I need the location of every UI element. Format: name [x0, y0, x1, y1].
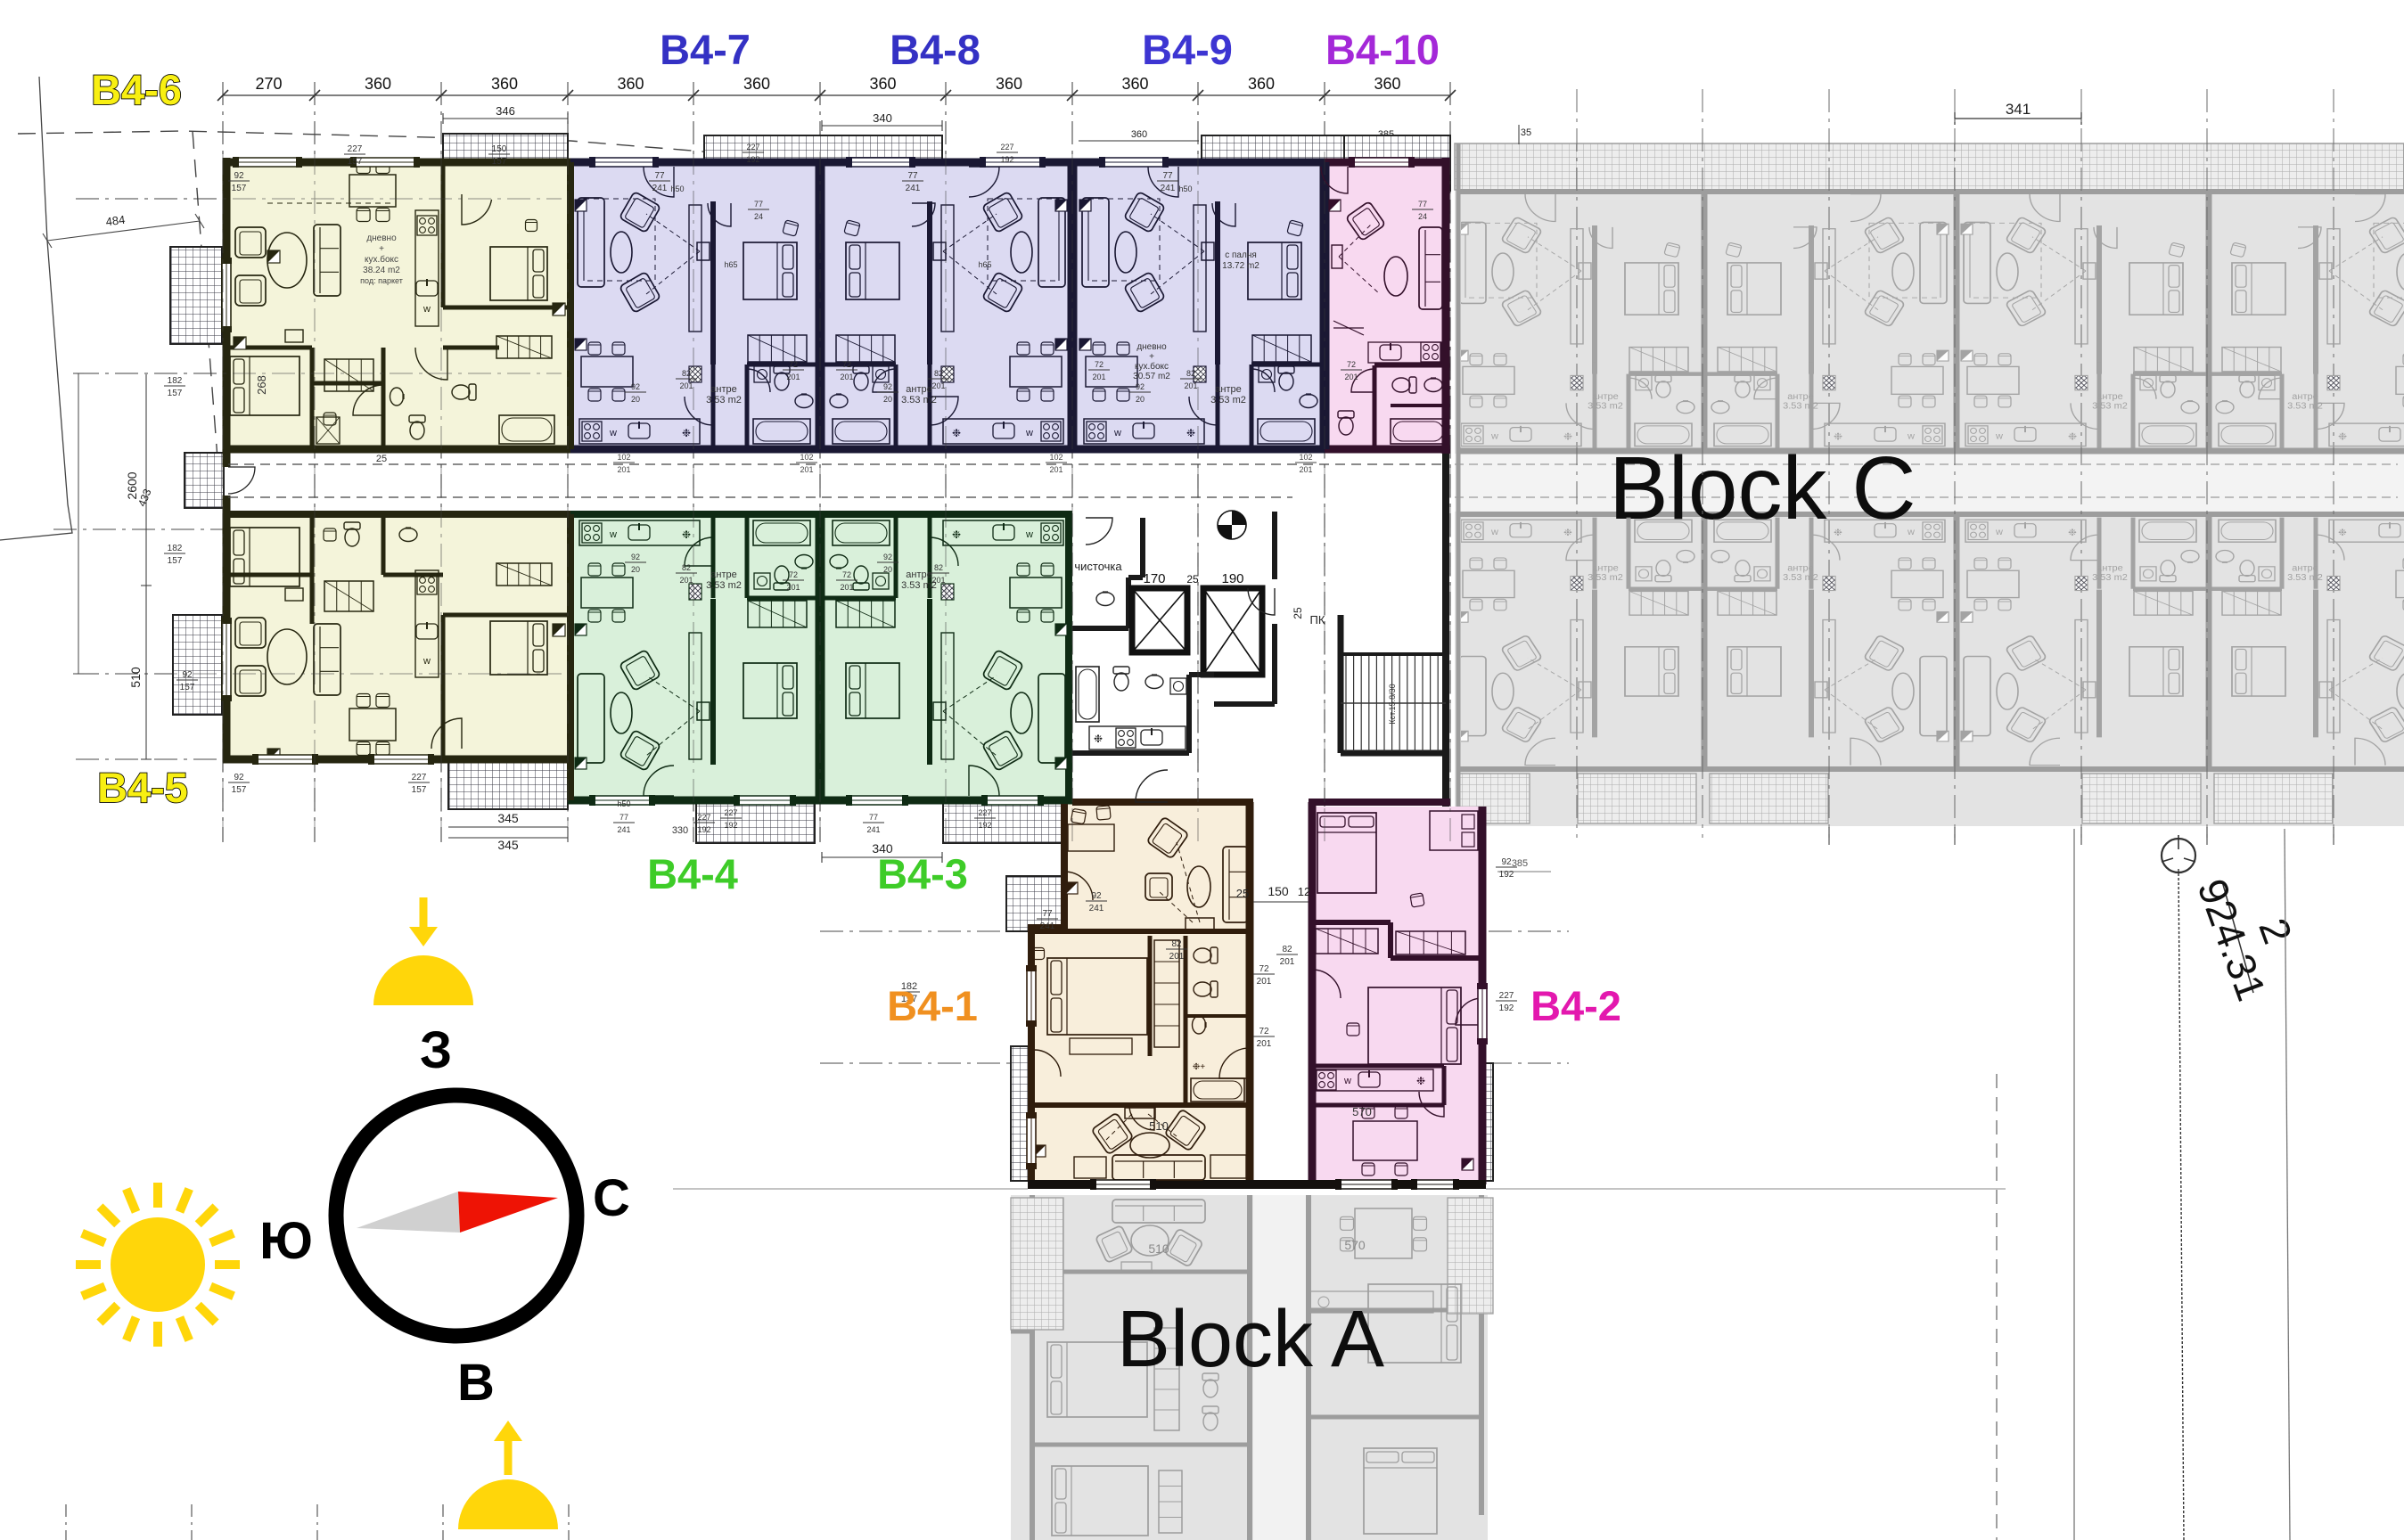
svg-text:антре: антре	[710, 384, 736, 395]
svg-text:92: 92	[234, 171, 244, 181]
svg-text:201: 201	[840, 373, 853, 381]
svg-text:201: 201	[800, 465, 813, 474]
svg-text:30.57 m2: 30.57 m2	[1133, 372, 1170, 381]
svg-text:антре: антре	[906, 384, 931, 395]
svg-text:B4-10: B4-10	[1325, 26, 1440, 73]
svg-text:антре: антре	[1787, 564, 1814, 573]
svg-text:157: 157	[168, 556, 183, 566]
svg-text:227: 227	[978, 808, 991, 817]
svg-text:ПК: ПК	[1310, 613, 1325, 627]
svg-text:157: 157	[412, 785, 427, 795]
svg-text:3.53 m2: 3.53 m2	[1783, 573, 1818, 582]
svg-text:92: 92	[234, 773, 244, 782]
svg-text:3.53 m2: 3.53 m2	[706, 395, 742, 405]
svg-text:157: 157	[492, 157, 507, 167]
svg-text:B4-7: B4-7	[660, 26, 751, 73]
svg-text:h65: h65	[724, 260, 737, 269]
svg-text:92: 92	[182, 670, 193, 680]
svg-text:150: 150	[492, 144, 507, 154]
svg-text:3.53 m2: 3.53 m2	[2287, 573, 2323, 582]
svg-text:345: 345	[497, 811, 519, 825]
svg-text:антре: антре	[906, 569, 931, 580]
svg-text:77: 77	[1418, 200, 1427, 209]
svg-text:З: З	[420, 1021, 452, 1079]
svg-text:w: w	[1113, 428, 1121, 438]
svg-text:360: 360	[365, 75, 391, 93]
svg-text:227: 227	[1499, 991, 1514, 1001]
svg-text:антре: антре	[2096, 391, 2123, 401]
svg-text:❉: ❉	[1834, 528, 1842, 538]
svg-text:92: 92	[631, 553, 640, 561]
svg-text:❉: ❉	[682, 528, 691, 541]
svg-text:227: 227	[348, 144, 363, 154]
svg-text:w: w	[1907, 528, 1916, 537]
svg-text:82: 82	[1171, 939, 1182, 949]
svg-text:h50: h50	[1178, 184, 1192, 193]
svg-text:346: 346	[496, 104, 515, 118]
svg-text:330: 330	[672, 825, 688, 836]
svg-text:Кст.15.8/30: Кст.15.8/30	[1388, 684, 1397, 724]
svg-text:w: w	[1995, 528, 2004, 537]
svg-text:25: 25	[1292, 607, 1304, 619]
svg-text:241: 241	[617, 825, 630, 834]
svg-text:3.53 m2: 3.53 m2	[2092, 573, 2128, 582]
svg-text:B4-8: B4-8	[890, 26, 980, 73]
svg-text:❉: ❉	[2338, 432, 2347, 442]
svg-text:201: 201	[1092, 373, 1105, 381]
svg-text:192: 192	[1499, 870, 1514, 880]
svg-text:12: 12	[1298, 885, 1310, 898]
svg-text:201: 201	[1280, 957, 1295, 967]
svg-text:w: w	[1907, 431, 1915, 441]
svg-text:82: 82	[934, 369, 943, 378]
svg-text:w: w	[423, 656, 431, 667]
svg-text:3.53 m2: 3.53 m2	[1783, 401, 1818, 411]
svg-text:157: 157	[232, 785, 247, 795]
svg-text:92: 92	[1501, 857, 1512, 867]
svg-text:201: 201	[1344, 373, 1358, 381]
svg-text:360: 360	[617, 75, 644, 93]
svg-text:241: 241	[906, 184, 921, 193]
svg-text:77: 77	[754, 200, 763, 209]
svg-text:антре: антре	[1215, 384, 1241, 395]
svg-text:192: 192	[1499, 1003, 1514, 1013]
svg-text:182: 182	[168, 376, 183, 386]
svg-text:антре: антре	[2292, 391, 2318, 401]
svg-text:192: 192	[746, 155, 759, 164]
svg-text:92: 92	[883, 553, 892, 561]
svg-text:201: 201	[1184, 381, 1197, 390]
svg-text:77: 77	[869, 813, 878, 822]
svg-text:241: 241	[652, 184, 668, 193]
svg-text:82: 82	[682, 369, 691, 378]
svg-text:В: В	[457, 1354, 495, 1412]
svg-text:Ю: Ю	[259, 1212, 313, 1270]
svg-text:190: 190	[1221, 571, 1243, 586]
svg-text:3.53 m2: 3.53 m2	[1588, 401, 1623, 411]
svg-text:201: 201	[931, 381, 945, 390]
svg-text:w: w	[1995, 431, 2003, 441]
svg-text:241: 241	[1040, 922, 1055, 931]
svg-text:201: 201	[679, 576, 693, 585]
svg-text:❉: ❉	[682, 427, 691, 439]
svg-text:201: 201	[1257, 977, 1272, 987]
svg-text:360: 360	[1131, 129, 1147, 140]
svg-text:+: +	[379, 244, 384, 254]
svg-text:82: 82	[1186, 369, 1195, 378]
svg-text:360: 360	[1121, 75, 1148, 93]
svg-text:72: 72	[789, 570, 798, 579]
svg-text:72: 72	[1259, 1027, 1269, 1036]
svg-text:102: 102	[617, 453, 630, 462]
svg-text:25: 25	[1236, 887, 1249, 900]
svg-text:192: 192	[1000, 155, 1013, 164]
svg-text:102: 102	[1049, 453, 1063, 462]
svg-text:чисточка: чисточка	[1074, 560, 1122, 573]
svg-text:341: 341	[2006, 101, 2031, 118]
svg-text:227: 227	[724, 808, 737, 817]
svg-text:❉: ❉	[1563, 432, 1572, 442]
svg-text:с палня: с палня	[1225, 250, 1257, 260]
svg-text:20: 20	[883, 565, 892, 574]
svg-text:h50: h50	[617, 799, 630, 808]
svg-text:201: 201	[1049, 465, 1063, 474]
svg-text:102: 102	[1299, 453, 1312, 462]
svg-text:182: 182	[168, 544, 183, 553]
svg-text:201: 201	[786, 373, 800, 381]
svg-text:13.72 m2: 13.72 m2	[1222, 261, 1259, 271]
svg-text:72: 72	[1347, 360, 1356, 369]
svg-text:241: 241	[1161, 184, 1176, 193]
svg-text:Block C: Block C	[1609, 438, 1916, 538]
svg-text:92: 92	[631, 382, 640, 391]
svg-text:360: 360	[1248, 75, 1275, 93]
svg-text:B4-6: B4-6	[91, 66, 182, 113]
svg-text:w: w	[1490, 431, 1498, 441]
svg-text:201: 201	[931, 576, 945, 585]
svg-text:20: 20	[631, 565, 640, 574]
svg-text:82: 82	[934, 563, 943, 572]
svg-text:360: 360	[996, 75, 1022, 93]
svg-text:❉: ❉	[1563, 528, 1572, 538]
svg-text:72: 72	[1259, 964, 1269, 974]
svg-text:❉: ❉	[952, 427, 961, 439]
svg-text:❉: ❉	[2068, 432, 2077, 442]
svg-text:201: 201	[1299, 465, 1312, 474]
svg-text:❉: ❉	[1094, 733, 1103, 745]
svg-text:под: паркет: под: паркет	[360, 276, 403, 285]
svg-text:241: 241	[866, 825, 880, 834]
svg-text:192: 192	[978, 821, 991, 830]
svg-text:360: 360	[869, 75, 896, 93]
svg-text:h50: h50	[670, 184, 684, 193]
svg-text:❉: ❉	[1186, 427, 1195, 439]
svg-text:антре: антре	[2096, 564, 2123, 573]
svg-text:B4-5: B4-5	[97, 764, 188, 811]
svg-text:227: 227	[412, 773, 427, 782]
svg-text:268: 268	[255, 375, 268, 395]
svg-text:201: 201	[840, 583, 853, 592]
svg-text:w: w	[609, 529, 617, 540]
svg-text:кух.бокс: кух.бокс	[1135, 361, 1169, 372]
svg-text:38.24 m2: 38.24 m2	[363, 266, 400, 275]
svg-text:227: 227	[697, 813, 710, 822]
svg-text:77: 77	[619, 813, 628, 822]
svg-text:3.53 m2: 3.53 m2	[901, 395, 937, 405]
svg-text:150: 150	[1268, 884, 1289, 898]
svg-text:201: 201	[1169, 952, 1185, 962]
svg-text:92: 92	[883, 382, 892, 391]
svg-text:24: 24	[754, 212, 763, 221]
svg-text:❉: ❉	[2068, 528, 2077, 538]
svg-text:92: 92	[1136, 382, 1145, 391]
svg-text:157: 157	[348, 157, 363, 167]
svg-text:360: 360	[1374, 75, 1400, 93]
svg-text:3.53 m2: 3.53 m2	[2092, 401, 2128, 411]
svg-text:B4-9: B4-9	[1142, 26, 1233, 73]
svg-text:24: 24	[1418, 212, 1427, 221]
svg-text:25: 25	[1186, 573, 1199, 586]
svg-text:2600: 2600	[125, 471, 139, 499]
svg-text:С: С	[593, 1169, 630, 1227]
svg-text:B4-2: B4-2	[1530, 982, 1621, 1029]
svg-text:дневно: дневно	[1136, 342, 1167, 352]
svg-text:❉: ❉	[1416, 1075, 1425, 1087]
svg-text:3.53 m2: 3.53 m2	[1588, 573, 1623, 582]
svg-text:570: 570	[1344, 1238, 1366, 1252]
svg-text:227: 227	[746, 143, 759, 152]
svg-text:201: 201	[679, 381, 693, 390]
svg-text:345: 345	[497, 838, 519, 852]
svg-text:201: 201	[786, 583, 800, 592]
svg-text:w: w	[1025, 428, 1033, 438]
svg-text:170: 170	[1143, 571, 1165, 586]
svg-text:w: w	[1025, 529, 1033, 540]
svg-text:72: 72	[842, 360, 851, 369]
svg-text:антре: антре	[1592, 564, 1619, 573]
svg-text:510: 510	[1149, 1119, 1169, 1133]
svg-text:72: 72	[1095, 360, 1104, 369]
svg-text:3.53 m2: 3.53 m2	[2287, 401, 2323, 411]
svg-text:антре: антре	[1787, 391, 1814, 401]
svg-text:антре: антре	[1592, 391, 1619, 401]
svg-text:w: w	[1343, 1076, 1351, 1086]
svg-text:w: w	[423, 304, 431, 315]
svg-text:20: 20	[1136, 395, 1145, 404]
svg-text:340: 340	[873, 111, 892, 125]
svg-text:92: 92	[1091, 891, 1102, 901]
svg-text:201: 201	[1257, 1039, 1272, 1049]
svg-text:3.53 m2: 3.53 m2	[706, 580, 742, 591]
svg-text:B4-3: B4-3	[877, 850, 968, 897]
svg-text:w: w	[1490, 528, 1499, 537]
svg-text:антре: антре	[2292, 564, 2318, 573]
svg-text:484: 484	[105, 213, 126, 229]
svg-text:72: 72	[842, 570, 851, 579]
svg-text:360: 360	[743, 75, 770, 93]
svg-text:77: 77	[654, 171, 665, 181]
svg-text:157: 157	[168, 389, 183, 398]
svg-text:82: 82	[1282, 945, 1292, 954]
svg-text:20: 20	[883, 395, 892, 404]
svg-text:кух.бокс: кух.бокс	[365, 254, 398, 265]
svg-text:h65: h65	[978, 260, 991, 269]
svg-text:241: 241	[1089, 904, 1104, 913]
svg-text:❉: ❉	[1834, 432, 1842, 442]
svg-text:72: 72	[789, 360, 798, 369]
svg-text:дневно: дневно	[366, 233, 397, 243]
svg-text:❉+: ❉+	[1193, 1062, 1205, 1072]
svg-text:82: 82	[682, 563, 691, 572]
svg-text:360: 360	[491, 75, 518, 93]
svg-text:20: 20	[631, 395, 640, 404]
svg-text:❉: ❉	[952, 528, 961, 541]
svg-text:w: w	[609, 428, 617, 438]
svg-text:102: 102	[800, 453, 813, 462]
svg-text:227: 227	[1000, 143, 1013, 152]
svg-text:192: 192	[697, 825, 710, 834]
svg-text:3.53 m2: 3.53 m2	[1210, 395, 1246, 405]
svg-text:B4-1: B4-1	[887, 982, 978, 1029]
svg-text:570: 570	[1352, 1105, 1372, 1118]
svg-text:270: 270	[255, 75, 282, 93]
svg-text:192: 192	[724, 821, 737, 830]
svg-text:25: 25	[376, 454, 387, 464]
svg-text:77: 77	[907, 171, 918, 181]
svg-text:77: 77	[1042, 909, 1053, 919]
svg-text:201: 201	[617, 465, 630, 474]
svg-text:510: 510	[1148, 1241, 1169, 1256]
svg-text:Block A: Block A	[1117, 1295, 1384, 1384]
svg-text:510: 510	[128, 667, 143, 688]
svg-text:157: 157	[180, 683, 195, 692]
svg-text:157: 157	[232, 184, 247, 193]
svg-text:B4-4: B4-4	[647, 850, 738, 897]
svg-text:77: 77	[1162, 171, 1173, 181]
svg-text:35: 35	[1521, 127, 1531, 138]
svg-text:+: +	[1149, 352, 1154, 362]
svg-text:антре: антре	[710, 569, 736, 580]
svg-text:❉: ❉	[2338, 528, 2347, 538]
